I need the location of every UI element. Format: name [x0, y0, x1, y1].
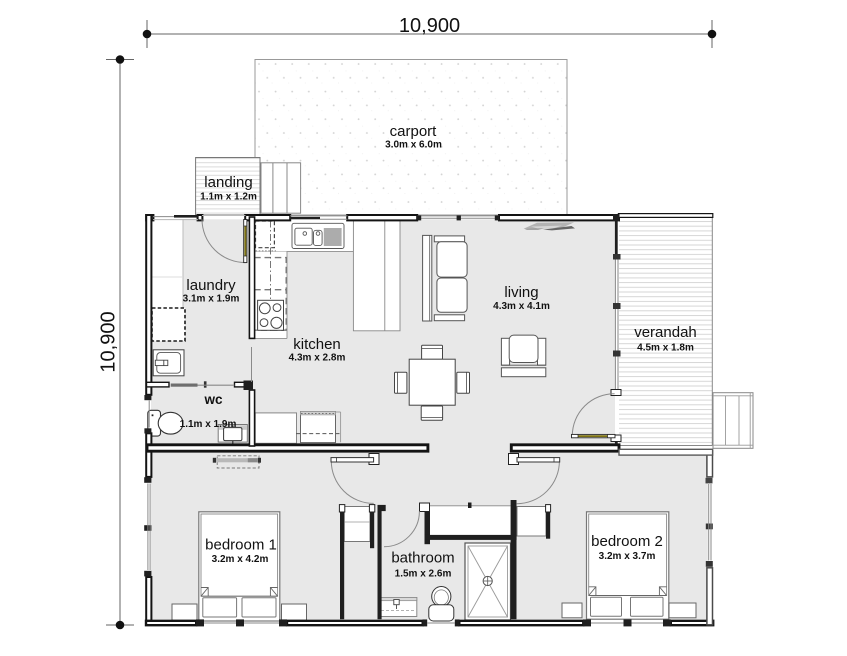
svg-text:bedroom 1: bedroom 1	[205, 537, 277, 554]
svg-text:3.2m x 4.2m: 3.2m x 4.2m	[212, 554, 269, 565]
svg-text:3.1m x 1.9m: 3.1m x 1.9m	[183, 294, 240, 305]
svg-text:living: living	[504, 284, 538, 301]
svg-text:bedroom 2: bedroom 2	[591, 533, 663, 550]
svg-text:verandah: verandah	[634, 324, 697, 341]
svg-text:4.3m x 4.1m: 4.3m x 4.1m	[493, 301, 550, 312]
svg-text:4.5m x 1.8m: 4.5m x 1.8m	[637, 343, 694, 354]
svg-text:wc: wc	[203, 392, 223, 407]
svg-text:1.1m x 1.2m: 1.1m x 1.2m	[200, 192, 257, 203]
svg-text:3.2m x 3.7m: 3.2m x 3.7m	[599, 551, 656, 562]
svg-text:carport: carport	[390, 123, 438, 140]
svg-text:4.3m x 2.8m: 4.3m x 2.8m	[289, 353, 346, 364]
svg-text:landing: landing	[204, 174, 252, 191]
svg-text:10,900: 10,900	[98, 311, 120, 372]
svg-text:kitchen: kitchen	[293, 336, 341, 353]
svg-text:3.0m x 6.0m: 3.0m x 6.0m	[385, 140, 442, 151]
svg-text:laundry: laundry	[186, 277, 236, 294]
svg-text:bathroom: bathroom	[391, 550, 454, 567]
svg-text:1.5m x 2.6m: 1.5m x 2.6m	[395, 569, 452, 580]
svg-text:10,900: 10,900	[399, 15, 460, 37]
svg-text:1.1m x 1.9m: 1.1m x 1.9m	[180, 419, 237, 430]
